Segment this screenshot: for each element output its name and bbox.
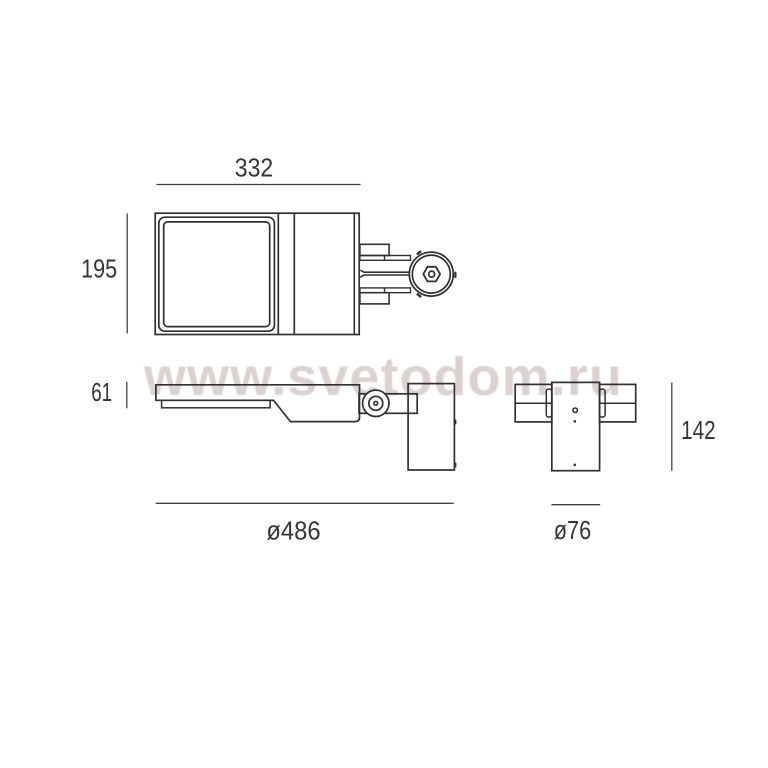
svg-text:61: 61 bbox=[91, 379, 112, 407]
svg-text:142: 142 bbox=[681, 417, 716, 445]
svg-text:332: 332 bbox=[235, 154, 274, 182]
svg-text:ø486: ø486 bbox=[266, 517, 320, 545]
svg-text:195: 195 bbox=[81, 256, 117, 284]
svg-text:ø76: ø76 bbox=[554, 517, 592, 545]
